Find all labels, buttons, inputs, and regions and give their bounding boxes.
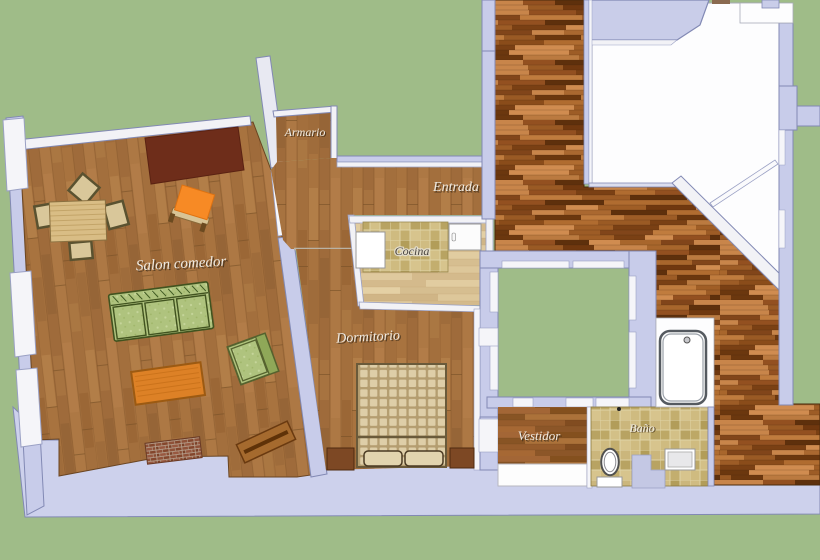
svg-text:Vestidor: Vestidor bbox=[518, 428, 562, 443]
svg-text:Baño: Baño bbox=[629, 421, 654, 435]
svg-text:Armario: Armario bbox=[284, 125, 326, 139]
svg-text:Entrada: Entrada bbox=[432, 180, 479, 195]
svg-text:Cocina: Cocina bbox=[395, 244, 430, 258]
